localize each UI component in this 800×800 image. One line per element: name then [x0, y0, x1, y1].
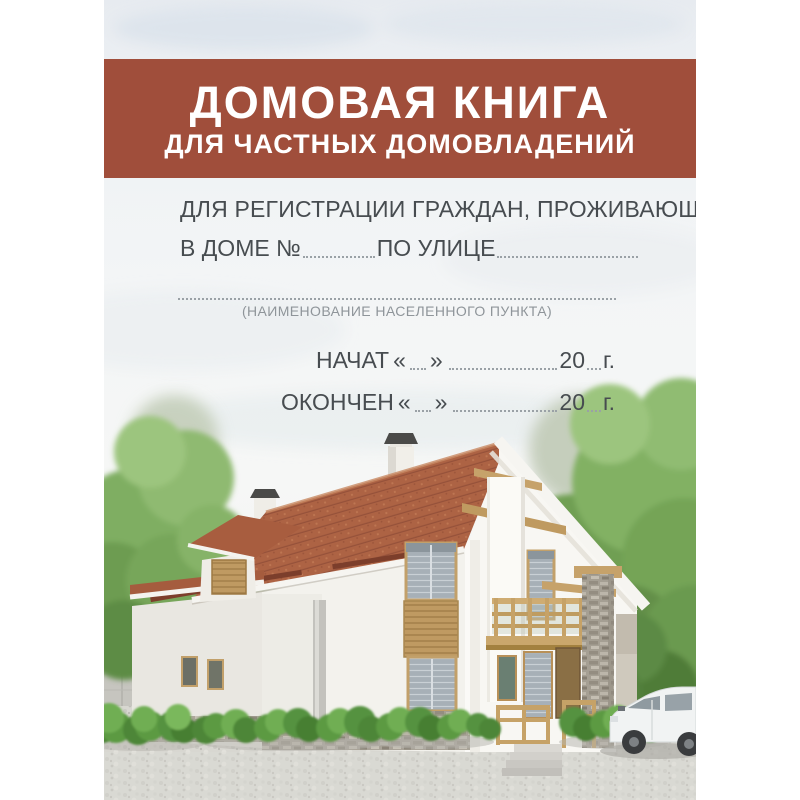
- started-year-field: [587, 362, 601, 370]
- finished-row: ОКОНЧЕН « » 20 г.: [281, 391, 615, 415]
- started-day-field: [410, 362, 426, 370]
- front-window-column: [400, 543, 464, 737]
- finished-label: ОКОНЧЕН: [281, 391, 394, 415]
- cover: ДОМОВАЯ КНИГА ДЛЯ ЧАСТНЫХ ДОМОВЛАДЕНИЙ Д…: [104, 0, 696, 800]
- street-label: ПО УЛИЦЕ: [377, 237, 496, 261]
- started-row: НАЧАТ « » 20 г.: [316, 349, 615, 373]
- street-field: [497, 250, 638, 258]
- settlement-caption: (НАИМЕНОВАНИЕ НАСЕЛЕННОГО ПУНКТА): [178, 303, 616, 319]
- title-band: ДОМОВАЯ КНИГА ДЛЯ ЧАСТНЫХ ДОМОВЛАДЕНИЙ: [104, 59, 696, 178]
- settlement-field: [178, 284, 616, 300]
- house-number-label: В ДОМЕ №: [180, 237, 301, 261]
- cover-subtitle: ДЛЯ ЧАСТНЫХ ДОМОВЛАДЕНИЙ: [164, 131, 635, 158]
- house-street-row: В ДОМЕ № ПО УЛИЦЕ: [180, 237, 640, 261]
- finished-day-field: [415, 404, 431, 412]
- house-number-field: [303, 250, 375, 258]
- quote-open: «: [389, 349, 408, 373]
- quote-close: »: [433, 391, 452, 415]
- cover-title: ДОМОВАЯ КНИГА: [190, 80, 611, 125]
- book-cover-page: ДОМОВАЯ КНИГА ДЛЯ ЧАСТНЫХ ДОМОВЛАДЕНИЙ Д…: [0, 0, 800, 800]
- finished-year-field: [587, 404, 601, 412]
- finished-year-prefix: 20: [559, 391, 585, 415]
- quote-close: »: [428, 349, 447, 373]
- finished-year-suffix: г.: [603, 391, 615, 415]
- started-label: НАЧАТ: [316, 349, 389, 373]
- started-year-prefix: 20: [559, 349, 585, 373]
- started-month-field: [449, 362, 558, 370]
- quote-open: «: [394, 391, 413, 415]
- started-year-suffix: г.: [603, 349, 615, 373]
- finished-month-field: [453, 404, 557, 412]
- registration-line: ДЛЯ РЕГИСТРАЦИИ ГРАЖДАН, ПРОЖИВАЮЩИХ: [180, 196, 696, 223]
